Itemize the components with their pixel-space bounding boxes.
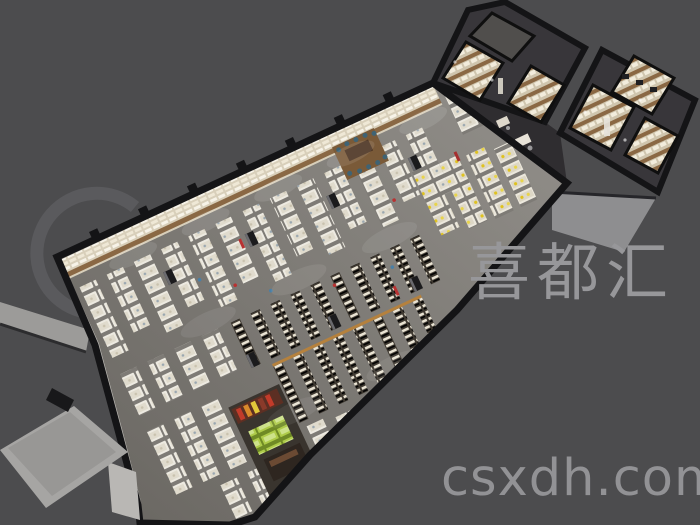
- watermark-site-url: csxdh.com: [441, 449, 700, 508]
- render-canvas: 喜都汇 csxdh.com: [0, 0, 700, 525]
- watermark-brand-text: 喜都汇: [468, 222, 675, 312]
- annex-stockrooms-right: [560, 50, 695, 192]
